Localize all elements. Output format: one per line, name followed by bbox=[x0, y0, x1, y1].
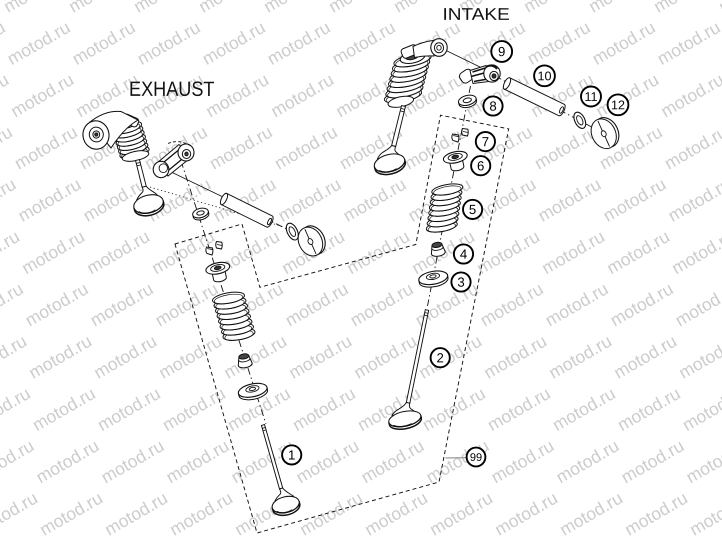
svg-text:motod.ru: motod.ru bbox=[0, 69, 12, 121]
svg-text:motod.ru: motod.ru bbox=[15, 174, 85, 226]
svg-text:motod.ru: motod.ru bbox=[542, 279, 612, 331]
svg-text:motod.ru: motod.ru bbox=[668, 226, 722, 278]
svg-text:motod.ru: motod.ru bbox=[69, 17, 139, 69]
svg-text:motod.ru: motod.ru bbox=[592, 69, 662, 121]
svg-text:motod.ru: motod.ru bbox=[275, 174, 345, 226]
svg-text:motod.ru: motod.ru bbox=[657, 69, 722, 121]
svg-text:motod.ru: motod.ru bbox=[473, 226, 543, 278]
svg-text:motod.ru: motod.ru bbox=[22, 279, 92, 331]
svg-text:motod.ru: motod.ru bbox=[325, 0, 395, 17]
svg-text:motod.ru: motod.ru bbox=[267, 69, 337, 121]
svg-text:motod.ru: motod.ru bbox=[0, 279, 27, 331]
svg-text:motod.ru: motod.ru bbox=[672, 279, 722, 331]
svg-text:motod.ru: motod.ru bbox=[520, 0, 590, 17]
svg-text:motod.ru: motod.ru bbox=[289, 383, 359, 435]
svg-text:motod.ru: motod.ru bbox=[90, 331, 160, 383]
svg-text:motod.ru: motod.ru bbox=[618, 435, 688, 487]
svg-text:12: 12 bbox=[611, 98, 625, 112]
svg-text:1: 1 bbox=[288, 448, 295, 463]
svg-text:3: 3 bbox=[457, 275, 464, 290]
svg-text:motod.ru: motod.ru bbox=[33, 435, 103, 487]
svg-text:motod.ru: motod.ru bbox=[0, 488, 41, 540]
svg-text:2: 2 bbox=[437, 350, 444, 365]
svg-text:7: 7 bbox=[482, 134, 489, 149]
svg-text:motod.ru: motod.ru bbox=[285, 331, 355, 383]
svg-text:motod.ru: motod.ru bbox=[470, 174, 540, 226]
svg-text:motod.ru: motod.ru bbox=[675, 331, 722, 383]
svg-text:99: 99 bbox=[470, 452, 482, 464]
svg-text:6: 6 bbox=[477, 158, 484, 173]
svg-text:motod.ru: motod.ru bbox=[426, 488, 496, 540]
svg-text:motod.ru: motod.ru bbox=[282, 279, 352, 331]
svg-text:10: 10 bbox=[537, 69, 551, 83]
svg-text:motod.ru: motod.ru bbox=[0, 331, 30, 383]
svg-text:motod.ru: motod.ru bbox=[65, 0, 135, 17]
svg-text:motod.ru: motod.ru bbox=[0, 0, 70, 17]
svg-text:motod.ru: motod.ru bbox=[621, 488, 691, 540]
svg-text:INTAKE: INTAKE bbox=[442, 5, 509, 24]
svg-text:motod.ru: motod.ru bbox=[361, 488, 431, 540]
svg-text:motod.ru: motod.ru bbox=[589, 17, 659, 69]
svg-text:motod.ru: motod.ru bbox=[260, 0, 330, 17]
svg-text:motod.ru: motod.ru bbox=[0, 174, 19, 226]
svg-text:motod.ru: motod.ru bbox=[607, 279, 677, 331]
svg-text:motod.ru: motod.ru bbox=[340, 174, 410, 226]
svg-text:motod.ru: motod.ru bbox=[7, 69, 77, 121]
svg-text:motod.ru: motod.ru bbox=[715, 0, 722, 17]
svg-text:motod.ru: motod.ru bbox=[155, 331, 225, 383]
svg-text:motod.ru: motod.ru bbox=[679, 383, 722, 435]
svg-text:motod.ru: motod.ru bbox=[654, 17, 722, 69]
svg-text:motod.ru: motod.ru bbox=[535, 174, 605, 226]
svg-text:motod.ru: motod.ru bbox=[488, 435, 558, 487]
svg-text:motod.ru: motod.ru bbox=[293, 435, 363, 487]
svg-text:motod.ru: motod.ru bbox=[549, 383, 619, 435]
svg-text:motod.ru: motod.ru bbox=[610, 331, 680, 383]
svg-text:motod.ru: motod.ru bbox=[101, 488, 171, 540]
svg-text:motod.ru: motod.ru bbox=[11, 122, 81, 174]
svg-text:9: 9 bbox=[498, 44, 505, 59]
svg-text:11: 11 bbox=[584, 90, 597, 104]
svg-text:motod.ru: motod.ru bbox=[166, 488, 236, 540]
svg-text:motod.ru: motod.ru bbox=[94, 383, 164, 435]
svg-text:EXHAUST: EXHAUST bbox=[129, 78, 215, 101]
svg-text:motod.ru: motod.ru bbox=[491, 488, 561, 540]
svg-text:motod.ru: motod.ru bbox=[0, 435, 37, 487]
svg-text:motod.ru: motod.ru bbox=[159, 383, 229, 435]
svg-text:motod.ru: motod.ru bbox=[296, 488, 366, 540]
svg-text:motod.ru: motod.ru bbox=[134, 17, 204, 69]
svg-text:motod.ru: motod.ru bbox=[343, 226, 413, 278]
svg-text:motod.ru: motod.ru bbox=[686, 488, 722, 540]
svg-text:motod.ru: motod.ru bbox=[195, 0, 265, 17]
svg-text:motod.ru: motod.ru bbox=[614, 383, 684, 435]
svg-text:motod.ru: motod.ru bbox=[98, 435, 168, 487]
svg-text:motod.ru: motod.ru bbox=[271, 122, 341, 174]
svg-text:motod.ru: motod.ru bbox=[87, 279, 157, 331]
svg-text:4: 4 bbox=[460, 247, 467, 262]
svg-text:motod.ru: motod.ru bbox=[661, 122, 722, 174]
svg-text:motod.ru: motod.ru bbox=[650, 0, 720, 17]
svg-text:motod.ru: motod.ru bbox=[480, 331, 550, 383]
svg-text:motod.ru: motod.ru bbox=[545, 331, 615, 383]
svg-text:motod.ru: motod.ru bbox=[531, 122, 601, 174]
svg-text:motod.ru: motod.ru bbox=[0, 383, 34, 435]
svg-text:motod.ru: motod.ru bbox=[18, 226, 88, 278]
svg-text:motod.ru: motod.ru bbox=[347, 279, 417, 331]
svg-text:motod.ru: motod.ru bbox=[524, 17, 594, 69]
svg-text:motod.ru: motod.ru bbox=[683, 435, 722, 487]
svg-text:motod.ru: motod.ru bbox=[585, 0, 655, 17]
svg-text:motod.ru: motod.ru bbox=[553, 435, 623, 487]
svg-text:8: 8 bbox=[489, 99, 496, 114]
svg-text:motod.ru: motod.ru bbox=[477, 279, 547, 331]
svg-text:motod.ru: motod.ru bbox=[264, 17, 334, 69]
svg-text:motod.ru: motod.ru bbox=[0, 226, 23, 278]
svg-text:motod.ru: motod.ru bbox=[603, 226, 673, 278]
svg-text:motod.ru: motod.ru bbox=[83, 226, 153, 278]
svg-text:5: 5 bbox=[469, 202, 476, 217]
svg-text:motod.ru: motod.ru bbox=[163, 435, 233, 487]
svg-text:motod.ru: motod.ru bbox=[459, 17, 529, 69]
svg-text:motod.ru: motod.ru bbox=[130, 0, 200, 17]
svg-text:motod.ru: motod.ru bbox=[600, 174, 670, 226]
svg-text:motod.ru: motod.ru bbox=[358, 435, 428, 487]
svg-text:motod.ru: motod.ru bbox=[4, 17, 74, 69]
svg-text:motod.ru: motod.ru bbox=[25, 331, 95, 383]
svg-text:motod.ru: motod.ru bbox=[538, 226, 608, 278]
svg-text:motod.ru: motod.ru bbox=[0, 17, 9, 69]
svg-text:motod.ru: motod.ru bbox=[0, 122, 16, 174]
svg-text:motod.ru: motod.ru bbox=[36, 488, 106, 540]
svg-text:motod.ru: motod.ru bbox=[556, 488, 626, 540]
svg-text:motod.ru: motod.ru bbox=[206, 122, 276, 174]
svg-text:motod.ru: motod.ru bbox=[29, 383, 99, 435]
svg-text:motod.ru: motod.ru bbox=[199, 17, 269, 69]
svg-text:motod.ru: motod.ru bbox=[484, 383, 554, 435]
svg-text:motod.ru: motod.ru bbox=[329, 17, 399, 69]
svg-text:motod.ru: motod.ru bbox=[350, 331, 420, 383]
svg-text:motod.ru: motod.ru bbox=[665, 174, 722, 226]
